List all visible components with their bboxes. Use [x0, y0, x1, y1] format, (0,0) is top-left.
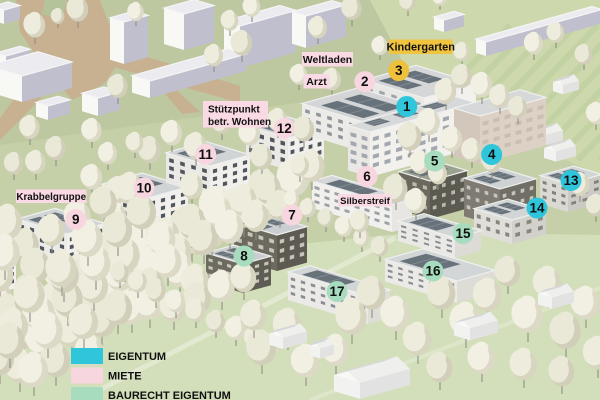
svg-text:3: 3: [395, 63, 403, 78]
svg-text:12: 12: [277, 121, 292, 136]
svg-text:BAURECHT EIGENTUM: BAURECHT EIGENTUM: [108, 390, 231, 400]
svg-text:11: 11: [199, 147, 214, 162]
svg-text:1: 1: [403, 99, 411, 114]
svg-text:14: 14: [529, 201, 545, 216]
svg-text:Silberstreif: Silberstreif: [340, 196, 390, 207]
svg-text:Weltladen: Weltladen: [303, 54, 352, 66]
svg-text:9: 9: [72, 212, 80, 227]
svg-text:8: 8: [240, 249, 248, 264]
svg-text:Arzt: Arzt: [306, 76, 327, 88]
svg-text:13: 13: [563, 173, 579, 188]
svg-text:4: 4: [488, 147, 496, 162]
svg-text:2: 2: [361, 74, 369, 89]
svg-text:7: 7: [288, 208, 296, 223]
svg-text:Stützpunkt: Stützpunkt: [208, 105, 260, 116]
svg-text:betr. Wohnen: betr. Wohnen: [208, 117, 271, 128]
svg-text:6: 6: [363, 169, 371, 184]
svg-text:5: 5: [431, 154, 439, 169]
svg-text:10: 10: [136, 181, 151, 196]
svg-text:Kindergarten: Kindergarten: [387, 42, 456, 54]
svg-text:MIETE: MIETE: [108, 371, 142, 383]
svg-text:EIGENTUM: EIGENTUM: [108, 351, 166, 363]
svg-text:15: 15: [455, 226, 471, 241]
svg-text:Krabbelgruppe: Krabbelgruppe: [16, 192, 86, 203]
svg-text:17: 17: [329, 284, 344, 299]
svg-text:16: 16: [425, 264, 441, 279]
